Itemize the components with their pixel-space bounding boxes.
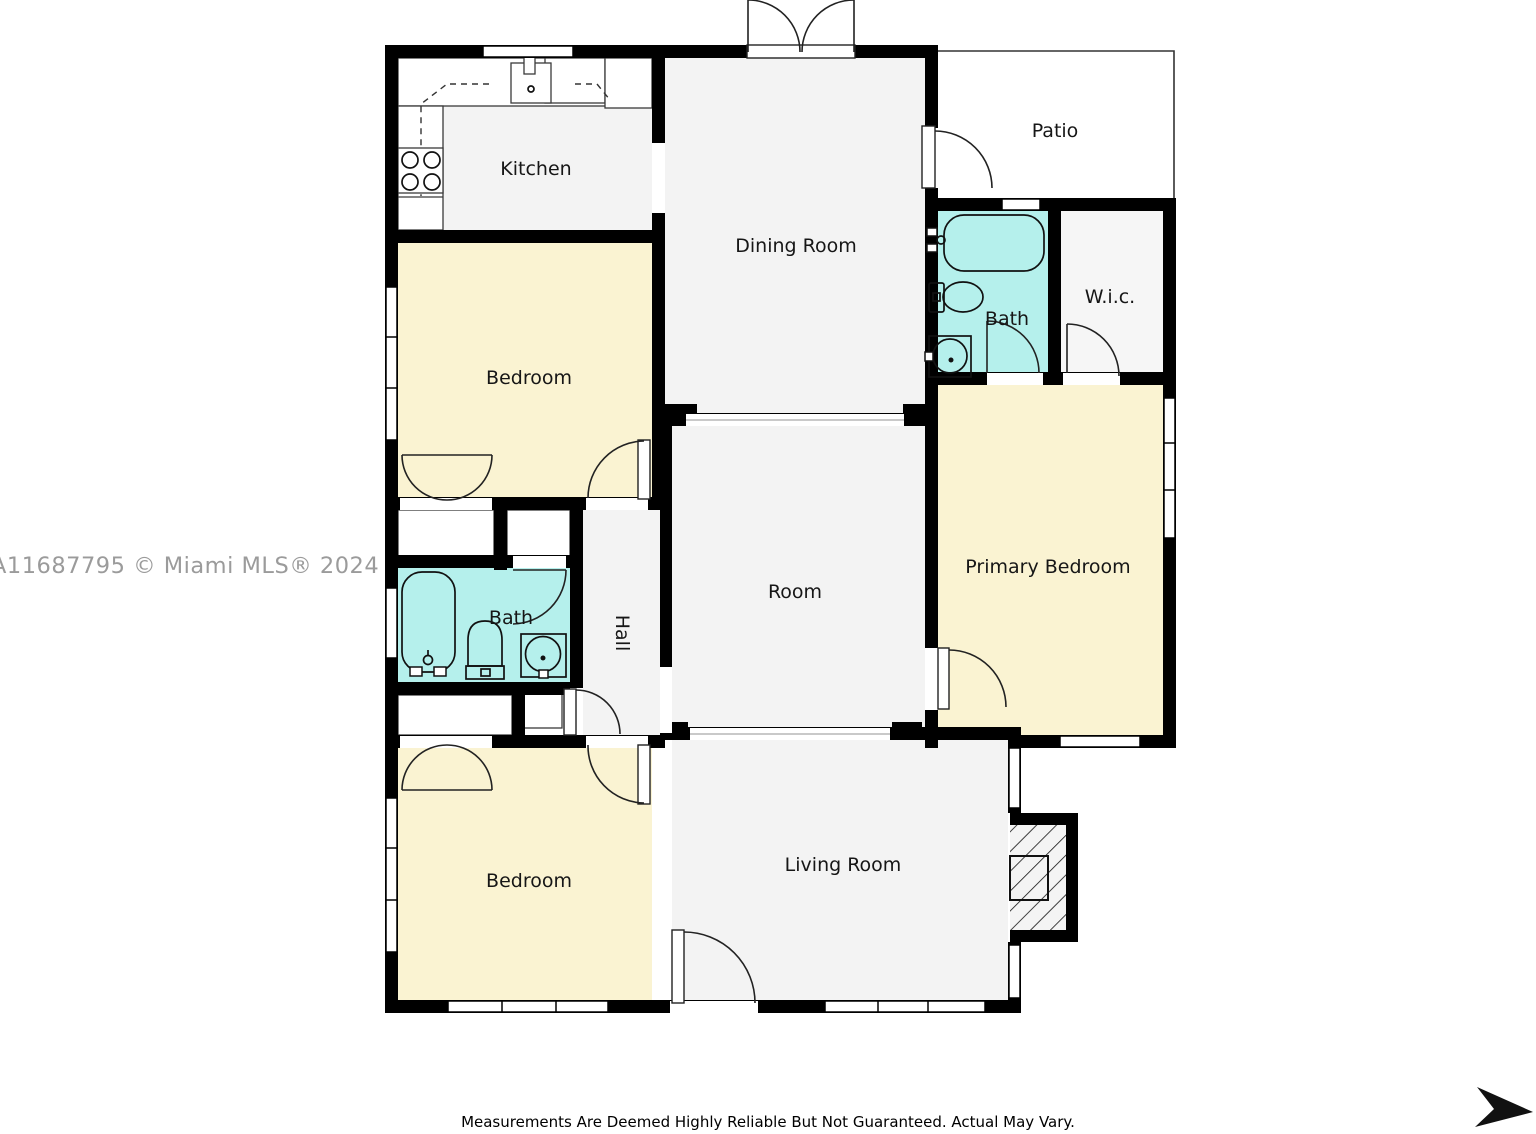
window-icon (386, 798, 397, 952)
closet-box (398, 510, 494, 556)
room-label-wic: W.i.c. (1085, 286, 1135, 308)
room-label-patio: Patio (1032, 120, 1079, 142)
window-icon (1009, 748, 1020, 808)
closet-box (520, 690, 562, 728)
kitchen-counter (545, 58, 605, 103)
room-label-bedroom-upper: Bedroom (486, 367, 572, 389)
room-label-room: Room (768, 581, 822, 603)
window-icon (1009, 945, 1020, 998)
entry-double-door (748, 0, 854, 52)
room-label-bath-lower: Bath (489, 607, 533, 629)
room-label-living-room: Living Room (785, 854, 902, 876)
room-label-bath-upper: Bath (985, 308, 1029, 330)
window-icon (448, 1001, 608, 1012)
window-icon (386, 588, 397, 658)
room-label-dining-room: Dining Room (735, 235, 856, 257)
fireplace-icon (1010, 813, 1078, 942)
window-icon (1164, 398, 1175, 538)
room-label-hall: Hall (611, 615, 633, 652)
room-label-bedroom-lower: Bedroom (486, 870, 572, 892)
closet-box (398, 695, 512, 735)
window-icon (1060, 736, 1140, 747)
bath-upper-floor (938, 211, 1048, 372)
window-icon (386, 287, 397, 440)
closet-box (507, 510, 570, 556)
mls-watermark: A11687795 © Miami MLS® 2024 (0, 553, 379, 579)
window-icon (825, 1001, 985, 1012)
kitchen-counter (605, 58, 652, 108)
room-label-kitchen: Kitchen (500, 158, 571, 180)
window-icon (1002, 199, 1040, 210)
kitchen-sink-icon (511, 57, 551, 103)
floor-plan-page: Kitchen Dining Room Patio Bath W.i.c. Be… (0, 0, 1536, 1134)
room-label-primary-bedroom: Primary Bedroom (965, 556, 1130, 578)
bath-lower-floor (398, 568, 570, 682)
window-icon (483, 46, 573, 57)
entry-threshold (747, 45, 855, 58)
room-floor (672, 426, 925, 727)
stove-icon (398, 148, 443, 197)
disclaimer-text: Measurements Are Deemed Highly Reliable … (0, 1113, 1536, 1131)
